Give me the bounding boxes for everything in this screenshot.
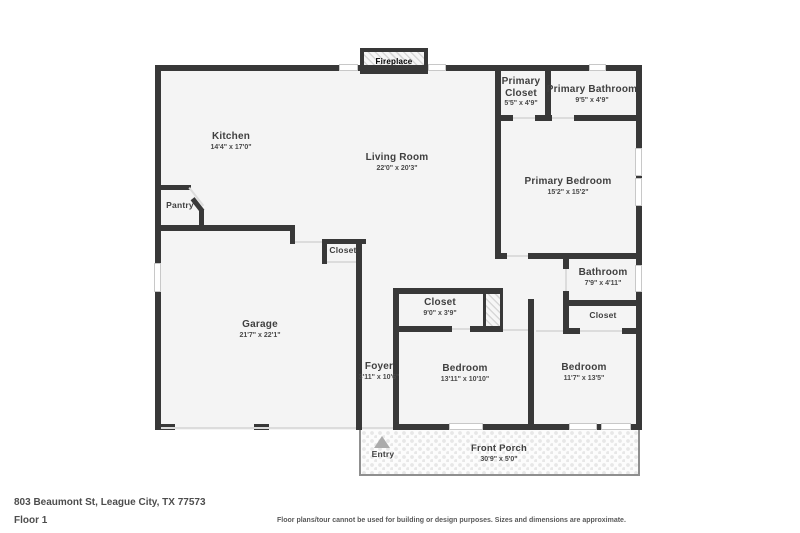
window	[569, 423, 597, 430]
wall-pantry-top	[155, 185, 191, 190]
closet2-slider-line	[580, 330, 622, 332]
wall-top	[155, 65, 642, 71]
room-label-bedroom-1: Bedroom 13'11" x 10'10"	[441, 363, 490, 384]
room-label-closet-mid: Closet	[329, 246, 356, 256]
primary-bedroom-door-line	[507, 255, 528, 257]
wall-garage-right	[356, 242, 362, 430]
front-door-line	[362, 427, 393, 429]
wall-suite-bottom-c	[574, 115, 642, 121]
window	[635, 178, 642, 206]
wall-bedroom-divider	[528, 330, 534, 430]
closet-mid-door-line	[327, 261, 357, 263]
room-label-closet-bedroom2: Closet	[589, 311, 616, 321]
room-label-pantry: Pantry	[166, 201, 194, 211]
wall-suite-bottom-a	[495, 115, 513, 121]
wall-nook	[528, 299, 534, 332]
window	[635, 148, 642, 176]
wall-left	[155, 65, 161, 430]
window	[601, 423, 631, 430]
wall-closet2-bottom-r	[622, 328, 642, 334]
room-label-bedroom-2: Bedroom 11'7" x 13'5"	[561, 362, 606, 383]
room-label-closet-hall: Closet 9'0" x 3'9"	[423, 297, 456, 318]
entry-arrow-icon	[374, 436, 390, 448]
room-label-primary-bedroom: Primary Bedroom 15'2" x 15'2"	[525, 176, 612, 197]
primary-bath-door-line	[552, 117, 574, 119]
closet-hall-door-line	[452, 328, 470, 330]
primary-closet-door-line	[513, 117, 535, 119]
bathroom-door-line	[565, 269, 567, 291]
disclaimer-text: Floor plans/tour cannot be used for buil…	[277, 517, 626, 524]
bedroom1-door-line	[503, 329, 528, 331]
closet-hall-hatch	[486, 294, 500, 328]
floor-label: Floor 1	[14, 515, 47, 526]
kitchen-door-line	[295, 241, 322, 243]
window	[635, 265, 642, 292]
wall-bath-left-a	[563, 259, 569, 269]
garage-door-line	[161, 427, 357, 429]
wall-bath-bottom	[563, 300, 642, 306]
room-label-living-room: Living Room 22'0" x 20'3"	[366, 152, 429, 173]
room-label-primary-bathroom: Primary Bathroom 9'5" x 4'9"	[547, 84, 637, 105]
wall-kitchen-garage	[155, 225, 295, 231]
window	[428, 64, 446, 71]
room-label-bathroom: Bathroom 7'9" x 4'11"	[579, 267, 628, 288]
room-label-primary-closet: Primary Closet 5'5" x 4'9"	[492, 76, 550, 108]
wall-closet2-bottom-l	[563, 328, 580, 334]
wall-hall-top-r	[528, 253, 642, 259]
bedroom2-door-line	[536, 330, 563, 332]
room-label-kitchen: Kitchen 14'4" x 17'0"	[210, 131, 251, 152]
wall-closet-hall-bottom-r	[470, 326, 503, 332]
room-label-garage: Garage 21'7" x 22'1"	[239, 319, 280, 340]
window	[339, 64, 358, 71]
room-label-front-porch: Front Porch 30'9" x 5'0"	[471, 444, 527, 464]
address-text: 803 Beaumont St, League City, TX 77573	[14, 497, 206, 508]
wall-foyer-right	[393, 288, 399, 430]
floor-plan: Fireplace	[0, 0, 800, 533]
wall-closet-hall-bottom-l	[393, 326, 452, 332]
room-label-foyer: Foyer 3'11" x 10'6"	[359, 361, 400, 382]
entry-label: Entry	[372, 450, 395, 460]
window	[449, 423, 483, 430]
window	[589, 64, 606, 71]
window	[154, 263, 161, 292]
